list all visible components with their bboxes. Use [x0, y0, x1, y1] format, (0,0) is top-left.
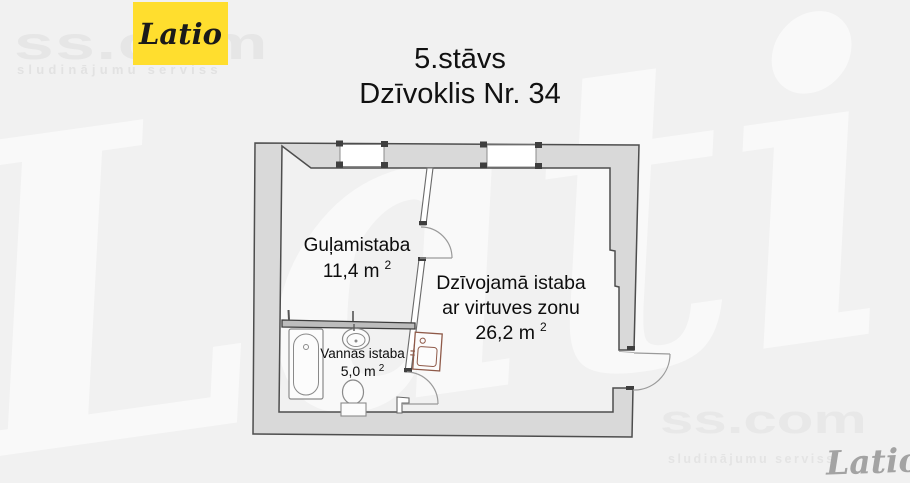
living-room-label: Dzīvojamā istaba ar virtuves zonu 26,2 m…	[408, 271, 614, 348]
latio-logo-badge: Latio	[133, 2, 228, 65]
apartment-title: Dzīvoklis Nr. 34	[255, 77, 665, 112]
bedroom-area-sup: 2	[385, 258, 392, 272]
bathroom-area: 5,0 m2	[300, 363, 425, 382]
living-room-name-line2: ar virtuves zonu	[408, 296, 614, 321]
living-room-name-line1: Dzīvojamā istaba	[408, 271, 614, 296]
bathroom-label: Vannas istaba 5,0 m2	[300, 345, 425, 382]
window-icon	[480, 142, 542, 170]
window-icon	[336, 141, 388, 169]
floor-title: 5.stāvs	[255, 42, 665, 77]
bathroom-name: Vannas istaba	[300, 345, 425, 362]
bathroom-area-sup: 2	[379, 363, 385, 374]
interior-wall-stub	[397, 397, 409, 413]
page-title: 5.stāvs Dzīvoklis Nr. 34	[255, 42, 665, 112]
bedroom-name: Guļamistaba	[276, 233, 438, 259]
floor-plan-image: Latio ss.com sludinājumu serviss ss.com …	[0, 0, 910, 483]
pipe-mark	[289, 310, 290, 320]
living-room-area-sup: 2	[540, 320, 547, 334]
bathroom-divider-wall	[282, 320, 415, 329]
latio-logo-text: Latio	[139, 17, 222, 51]
toilet-icon	[341, 380, 366, 416]
door-entrance	[619, 352, 670, 391]
living-room-area: 26,2 m2	[408, 321, 614, 348]
interior-wall-upper	[420, 168, 433, 225]
